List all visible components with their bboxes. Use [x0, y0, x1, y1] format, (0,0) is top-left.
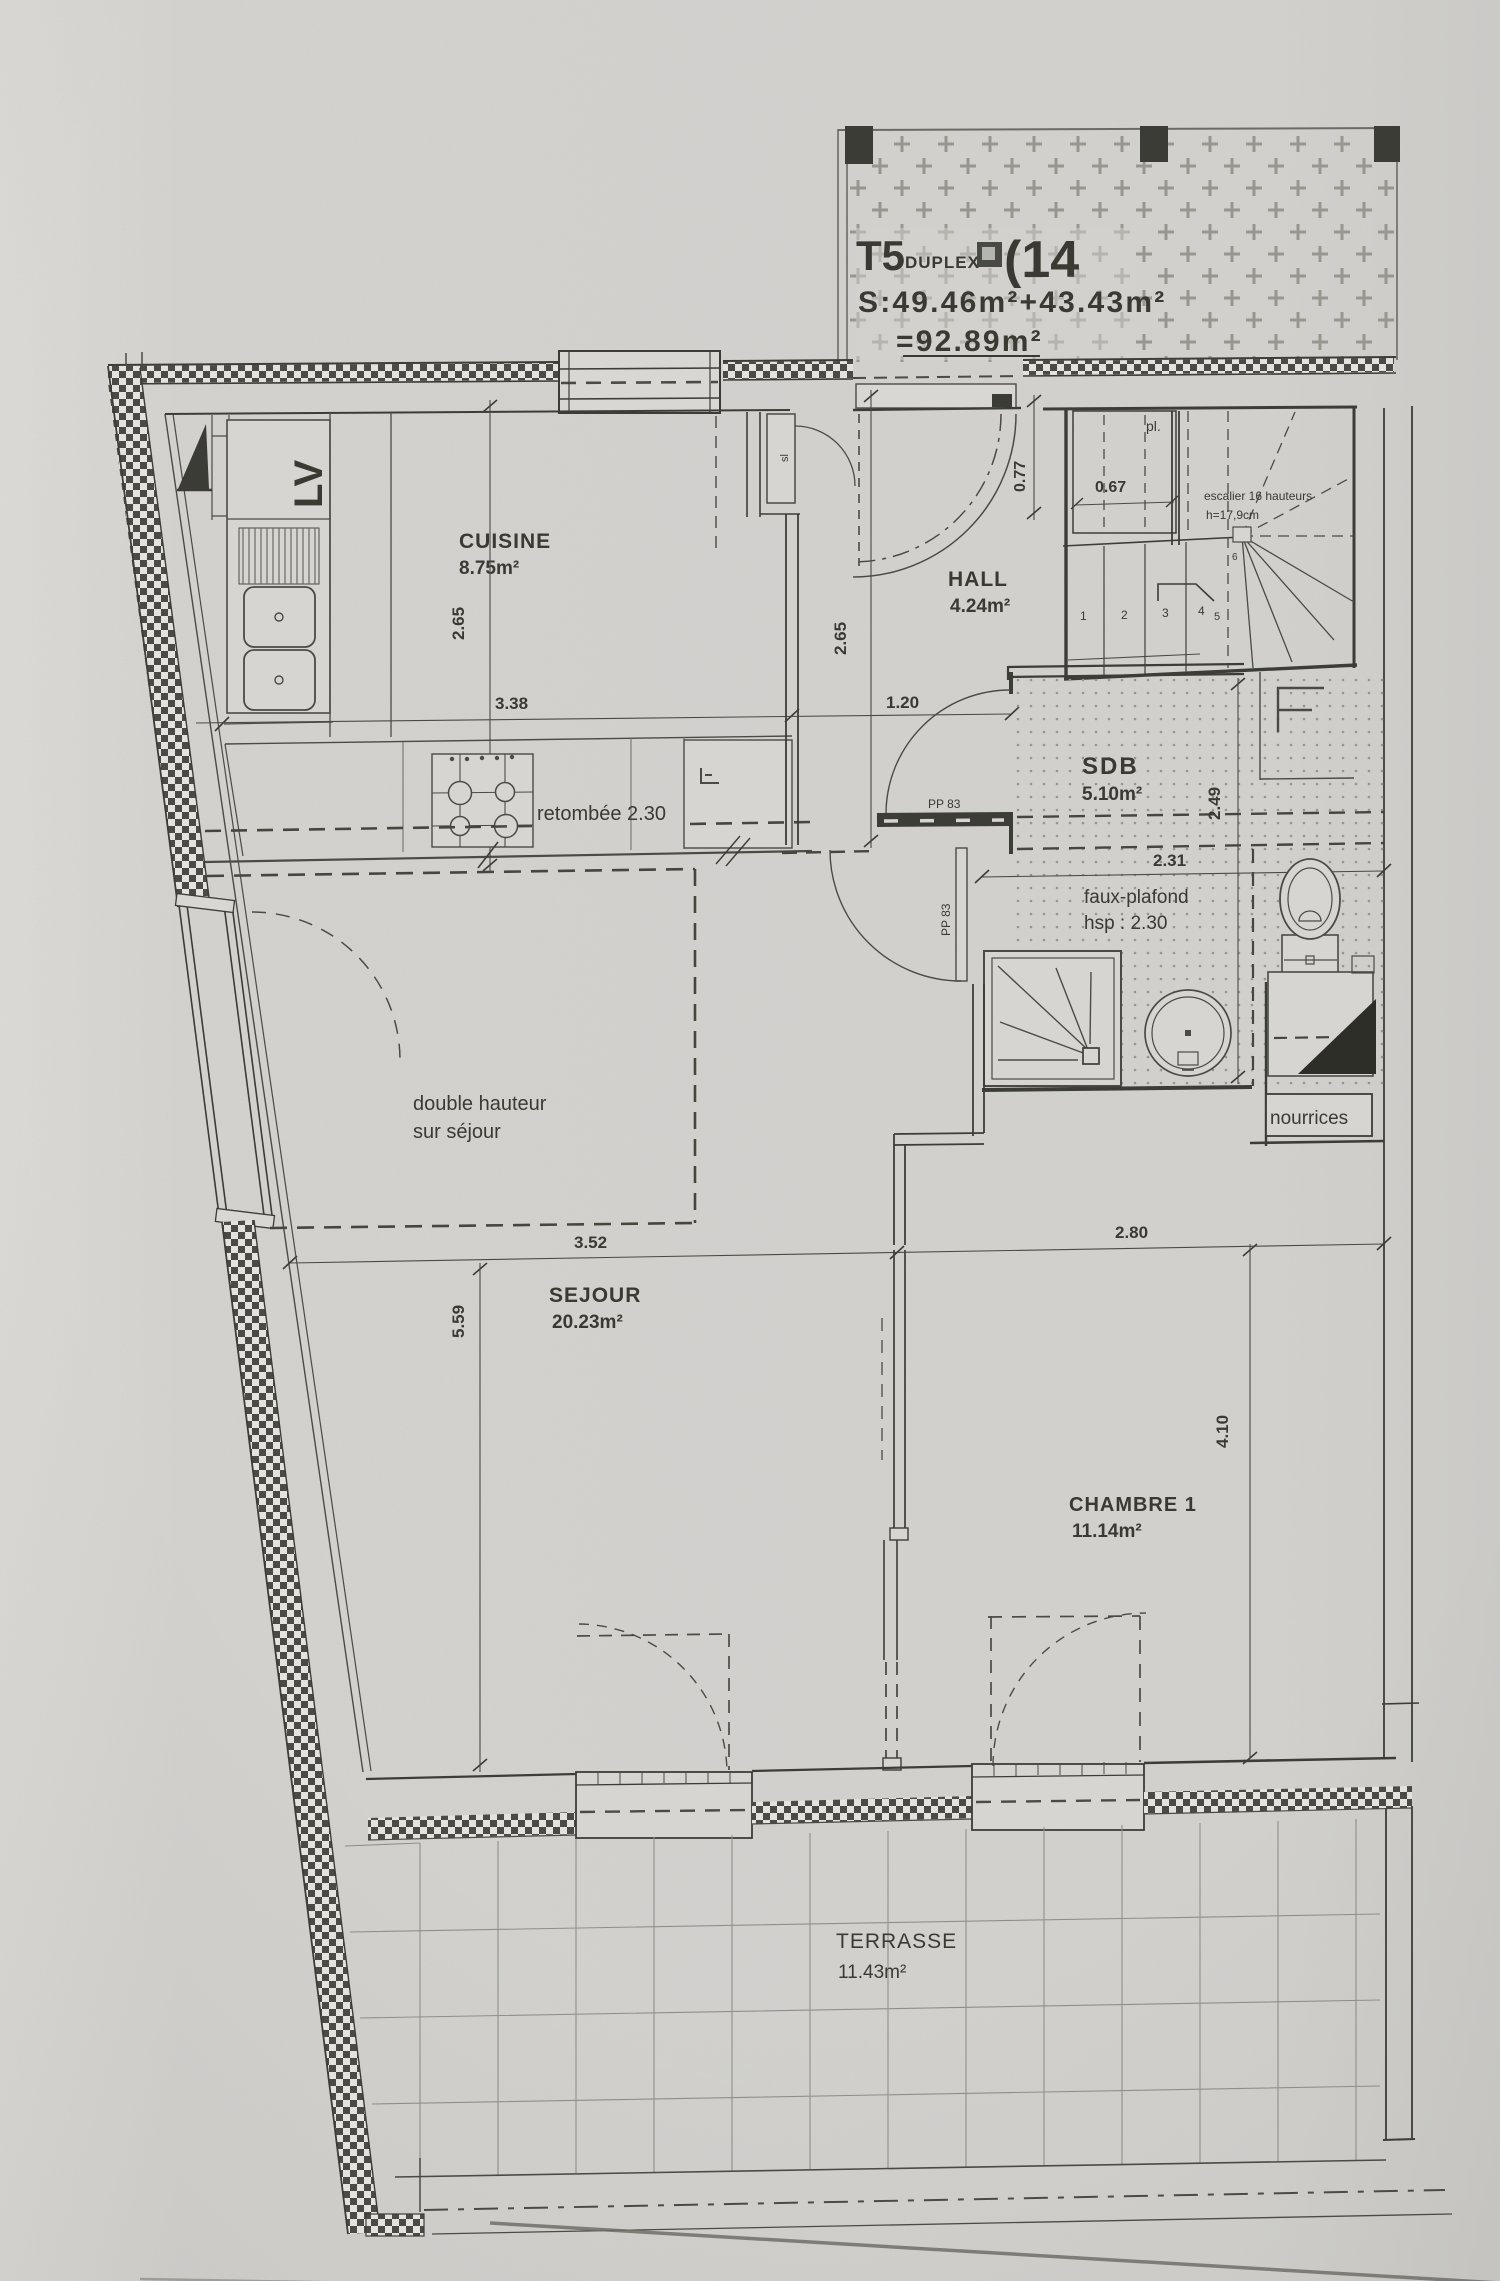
svg-text:5.59: 5.59 — [449, 1305, 468, 1338]
svg-text:(14: (14 — [1004, 231, 1079, 289]
svg-text:hsp : 2.30: hsp : 2.30 — [1084, 913, 1167, 934]
svg-text:3.38: 3.38 — [495, 694, 528, 713]
svg-text:PP 83: PP 83 — [928, 797, 961, 811]
svg-text:CUISINE: CUISINE — [459, 530, 551, 553]
svg-text:0.67: 0.67 — [1095, 479, 1126, 496]
svg-text:double hauteur: double hauteur — [413, 1093, 547, 1115]
svg-text:2.49: 2.49 — [1205, 787, 1224, 820]
svg-text:8.75m²: 8.75m² — [459, 558, 519, 579]
svg-text:PP 83: PP 83 — [939, 903, 953, 936]
svg-text:4.10: 4.10 — [1213, 1415, 1232, 1448]
svg-text:0.77: 0.77 — [1012, 461, 1029, 492]
svg-text:=92.89m²: =92.89m² — [896, 325, 1043, 358]
svg-text:faux-plafond: faux-plafond — [1084, 887, 1189, 908]
svg-text:1.20: 1.20 — [886, 693, 919, 712]
svg-text:S:49.46m²+43.43m²: S:49.46m²+43.43m² — [858, 286, 1166, 319]
svg-text:escalier 16 hauteurs: escalier 16 hauteurs — [1204, 489, 1312, 503]
svg-text:pl.: pl. — [1146, 418, 1161, 434]
svg-text:TERRASSE: TERRASSE — [836, 1930, 957, 1953]
svg-text:1: 1 — [1080, 609, 1087, 623]
svg-text:11.43m²: 11.43m² — [838, 1962, 906, 1983]
svg-text:3: 3 — [1162, 606, 1169, 620]
svg-text:2.65: 2.65 — [449, 607, 468, 640]
svg-text:h=17,9cm: h=17,9cm — [1206, 508, 1259, 522]
svg-text:sl: sl — [779, 454, 791, 462]
svg-text:2: 2 — [1121, 608, 1128, 622]
svg-text:SEJOUR: SEJOUR — [549, 1284, 641, 1307]
svg-text:11.14m²: 11.14m² — [1072, 1521, 1142, 1542]
svg-text:2.65: 2.65 — [831, 622, 850, 655]
svg-text:3.52: 3.52 — [574, 1233, 607, 1252]
svg-text:2.31: 2.31 — [1153, 851, 1186, 870]
svg-text:20.23m²: 20.23m² — [552, 1312, 623, 1333]
svg-text:6: 6 — [1232, 552, 1238, 563]
svg-text:5: 5 — [1214, 611, 1220, 623]
svg-text:sur séjour: sur séjour — [413, 1121, 501, 1143]
svg-text:HALL: HALL — [948, 568, 1008, 591]
svg-text:DUPLEX: DUPLEX — [905, 253, 980, 272]
svg-text:T5: T5 — [856, 232, 905, 279]
svg-text:LV: LV — [287, 460, 331, 508]
svg-text:4: 4 — [1198, 604, 1205, 618]
svg-text:SDB: SDB — [1082, 753, 1139, 780]
svg-text:4.24m²: 4.24m² — [950, 596, 1010, 617]
svg-text:5.10m²: 5.10m² — [1082, 784, 1142, 805]
svg-text:CHAMBRE 1: CHAMBRE 1 — [1069, 1494, 1197, 1516]
svg-text:nourrices: nourrices — [1270, 1108, 1348, 1129]
svg-text:2.80: 2.80 — [1115, 1223, 1148, 1242]
svg-text:retombée 2.30: retombée 2.30 — [537, 803, 666, 825]
